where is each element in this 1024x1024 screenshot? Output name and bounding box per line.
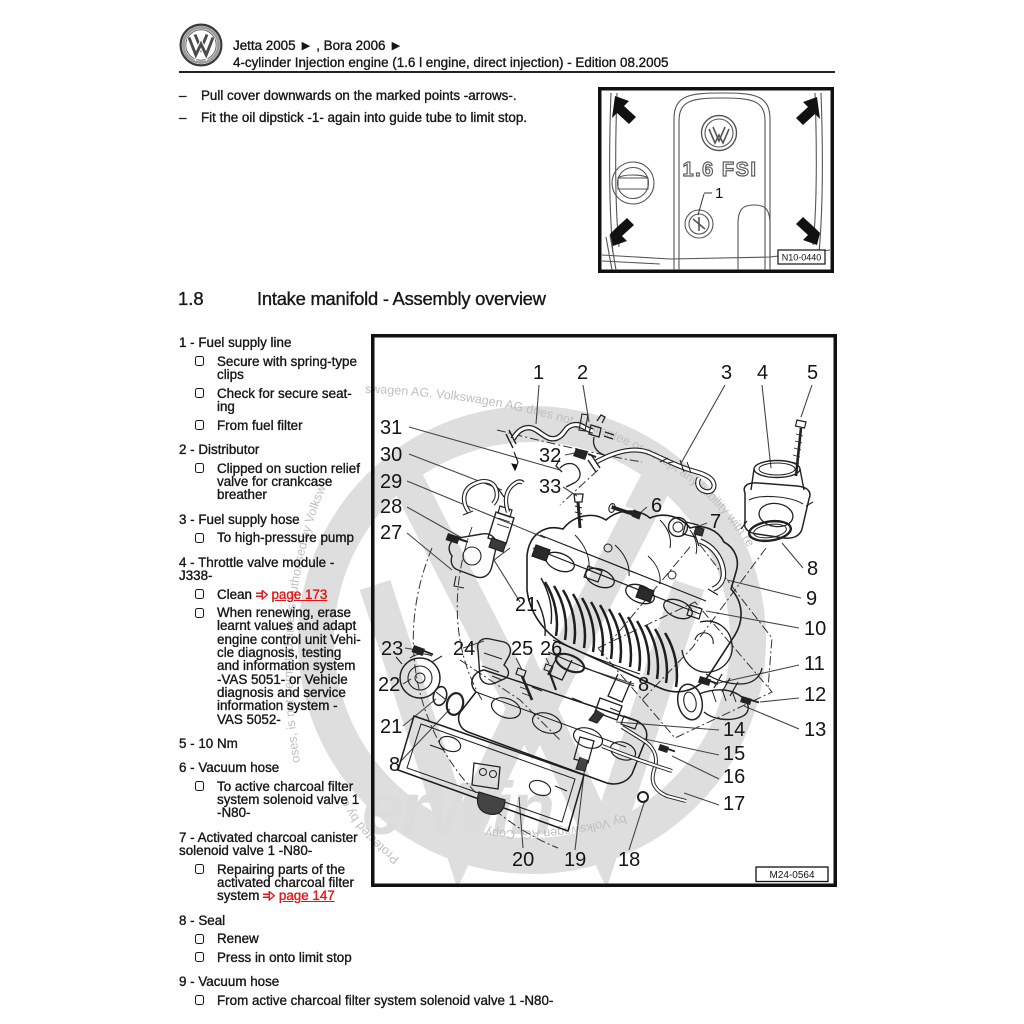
svg-text:20: 20 xyxy=(512,849,534,871)
svg-text:16: 16 xyxy=(723,766,745,788)
svg-text:3: 3 xyxy=(721,362,732,384)
svg-text:6: 6 xyxy=(651,495,662,517)
svg-text:17: 17 xyxy=(723,793,745,815)
svg-text:19: 19 xyxy=(564,849,586,871)
svg-text:26: 26 xyxy=(540,638,562,660)
svg-text:32: 32 xyxy=(539,445,561,467)
svg-text:33: 33 xyxy=(539,476,561,498)
svg-text:1.6 FSI: 1.6 FSI xyxy=(683,159,758,181)
svg-text:1: 1 xyxy=(715,185,723,202)
svg-text:8: 8 xyxy=(807,558,818,580)
svg-text:12: 12 xyxy=(804,684,826,706)
svg-text:21: 21 xyxy=(515,594,537,616)
svg-text:5: 5 xyxy=(807,362,818,384)
svg-text:9: 9 xyxy=(806,588,817,610)
svg-text:18: 18 xyxy=(618,849,640,871)
svg-text:13: 13 xyxy=(804,719,826,741)
svg-text:8: 8 xyxy=(638,674,649,696)
svg-text:14: 14 xyxy=(723,719,745,741)
svg-text:4: 4 xyxy=(757,362,768,384)
svg-text:24: 24 xyxy=(453,638,475,660)
svg-text:2: 2 xyxy=(577,362,588,384)
svg-text:7: 7 xyxy=(710,511,721,533)
svg-text:25: 25 xyxy=(511,638,533,660)
svg-text:10: 10 xyxy=(804,618,826,640)
svg-text:M24-0564: M24-0564 xyxy=(769,870,814,881)
svg-text:1: 1 xyxy=(533,362,544,384)
svg-text:N10-0440: N10-0440 xyxy=(782,253,822,263)
svg-text:11: 11 xyxy=(804,653,825,675)
svg-text:15: 15 xyxy=(723,743,745,765)
